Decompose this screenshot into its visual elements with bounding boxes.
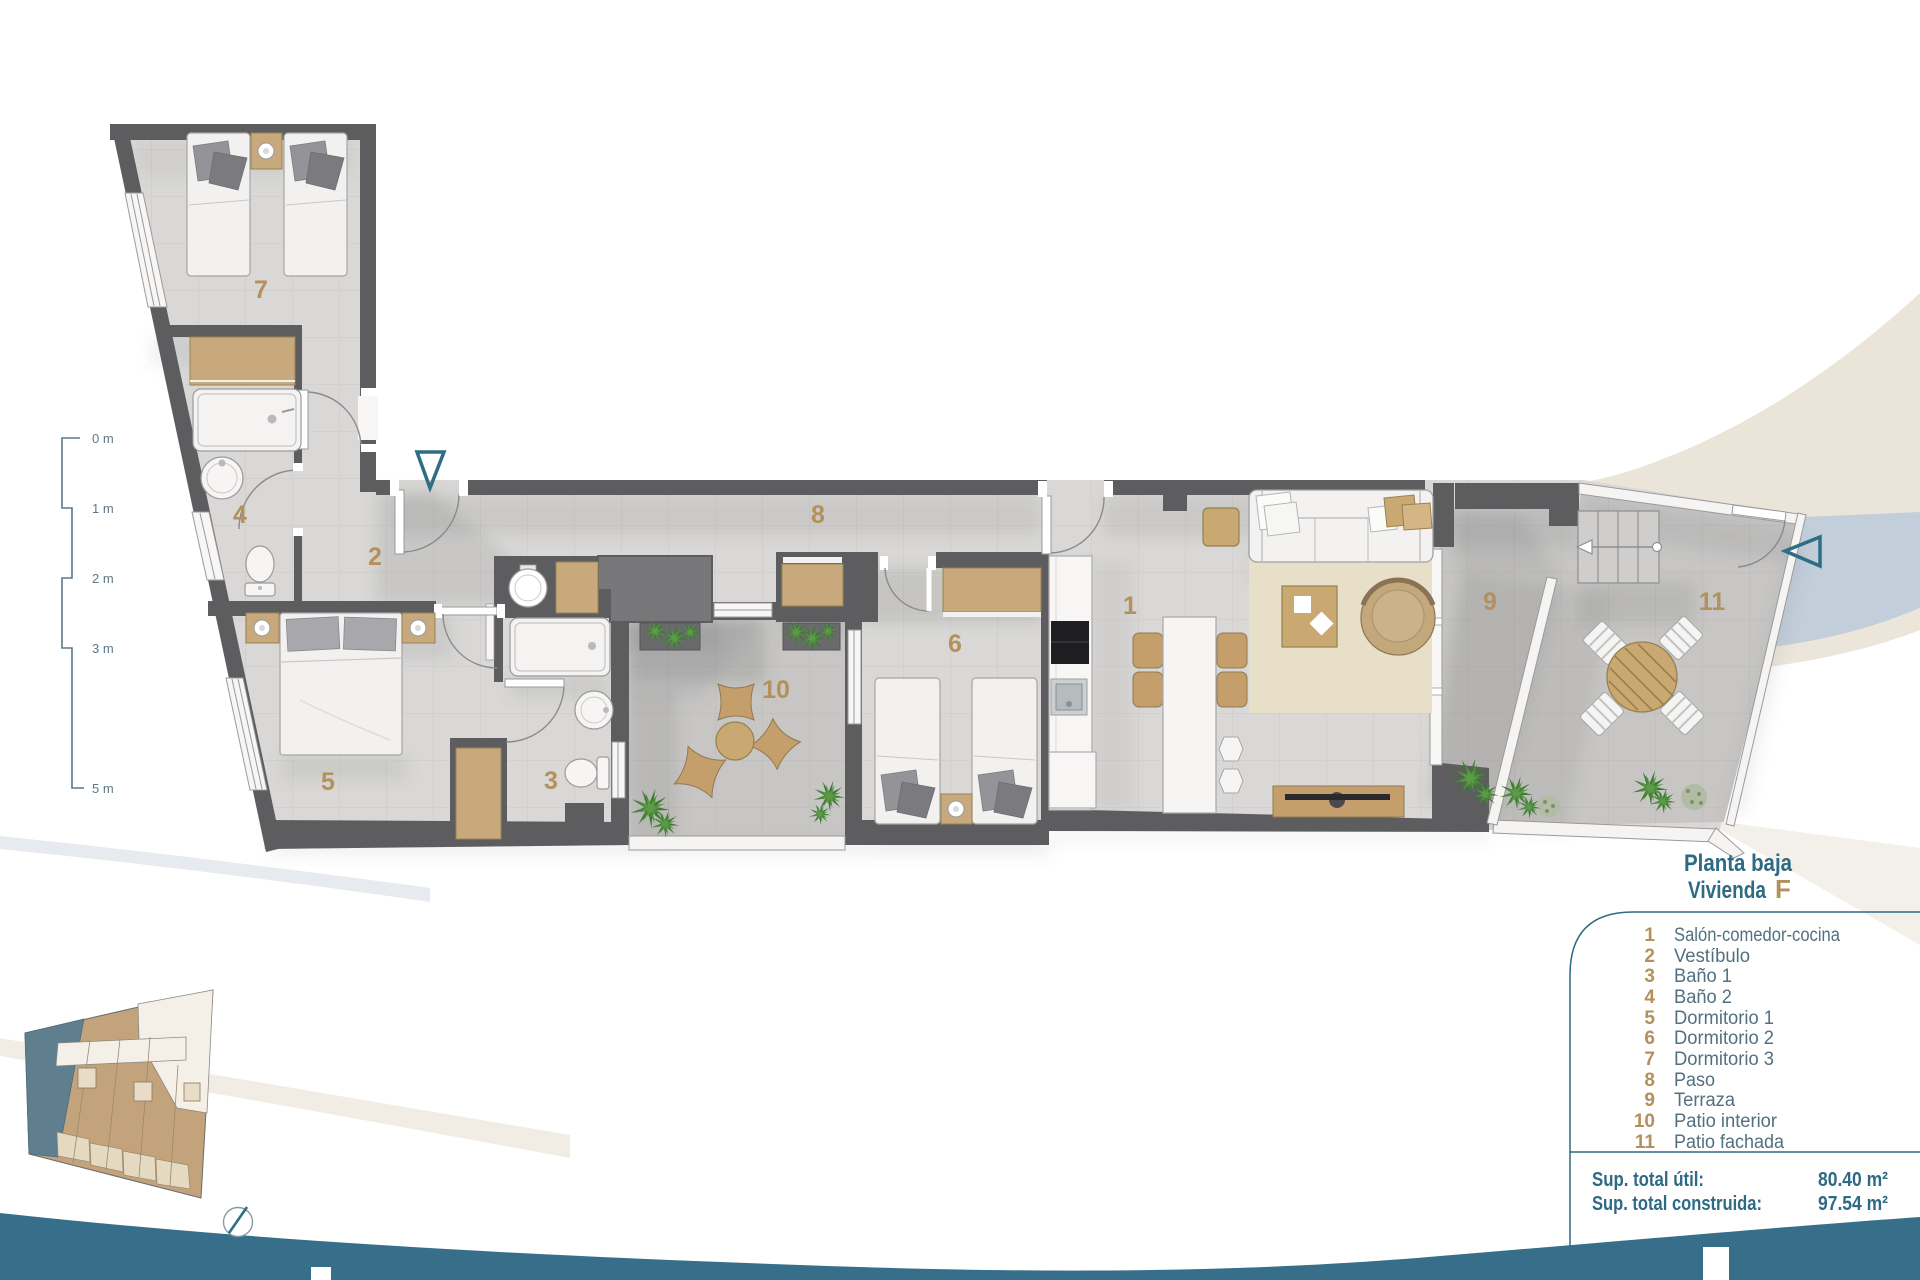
svg-text:Baño 1: Baño 1 xyxy=(1674,966,1732,987)
svg-text:3: 3 xyxy=(544,767,558,795)
svg-text:3 m: 3 m xyxy=(92,641,114,656)
svg-text:4: 4 xyxy=(233,501,247,529)
svg-text:4: 4 xyxy=(1644,987,1655,1008)
svg-text:Terraza: Terraza xyxy=(1674,1090,1735,1111)
svg-text:9: 9 xyxy=(1644,1090,1655,1111)
svg-text:6: 6 xyxy=(948,630,962,658)
svg-text:Paso: Paso xyxy=(1674,1070,1715,1091)
svg-text:1: 1 xyxy=(1644,925,1655,946)
svg-text:Vestíbulo: Vestíbulo xyxy=(1674,946,1750,967)
svg-text:7: 7 xyxy=(254,276,268,304)
svg-text:Patio interior: Patio interior xyxy=(1674,1111,1778,1132)
svg-text:1: 1 xyxy=(1123,592,1137,620)
svg-text:Planta baja: Planta baja xyxy=(1684,850,1793,877)
svg-text:5: 5 xyxy=(1644,1008,1655,1029)
svg-text:Dormitorio 2: Dormitorio 2 xyxy=(1674,1028,1774,1049)
svg-text:Salón-comedor-cocina: Salón-comedor-cocina xyxy=(1674,925,1840,946)
svg-text:8: 8 xyxy=(1644,1070,1655,1091)
svg-text:F: F xyxy=(1775,874,1791,904)
svg-text:10: 10 xyxy=(762,676,790,704)
svg-text:8: 8 xyxy=(811,501,825,529)
svg-text:10: 10 xyxy=(1634,1111,1655,1132)
svg-text:0 m: 0 m xyxy=(92,431,114,446)
svg-text:Patio fachada: Patio fachada xyxy=(1674,1132,1784,1153)
svg-text:3: 3 xyxy=(1644,966,1655,987)
svg-text:Dormitorio 3: Dormitorio 3 xyxy=(1674,1049,1774,1070)
svg-text:Baño 2: Baño 2 xyxy=(1674,987,1732,1008)
svg-text:2: 2 xyxy=(368,543,382,571)
svg-text:Sup. total útil:: Sup. total útil: xyxy=(1592,1169,1704,1191)
svg-text:11: 11 xyxy=(1635,1132,1656,1153)
svg-text:1 m: 1 m xyxy=(92,501,114,516)
svg-text:7: 7 xyxy=(1644,1049,1655,1070)
svg-text:Sup. total construida:: Sup. total construida: xyxy=(1592,1193,1762,1215)
svg-text:2 m: 2 m xyxy=(92,571,114,586)
svg-text:5 m: 5 m xyxy=(92,781,114,796)
svg-text:Vivienda: Vivienda xyxy=(1688,877,1767,904)
svg-text:80.40 m²: 80.40 m² xyxy=(1818,1169,1888,1191)
svg-text:97.54 m²: 97.54 m² xyxy=(1818,1193,1888,1215)
svg-text:2: 2 xyxy=(1644,946,1655,967)
svg-text:6: 6 xyxy=(1644,1028,1655,1049)
svg-text:Dormitorio 1: Dormitorio 1 xyxy=(1674,1008,1774,1029)
svg-text:11: 11 xyxy=(1699,588,1726,616)
svg-text:5: 5 xyxy=(321,768,335,796)
svg-text:9: 9 xyxy=(1483,588,1497,616)
